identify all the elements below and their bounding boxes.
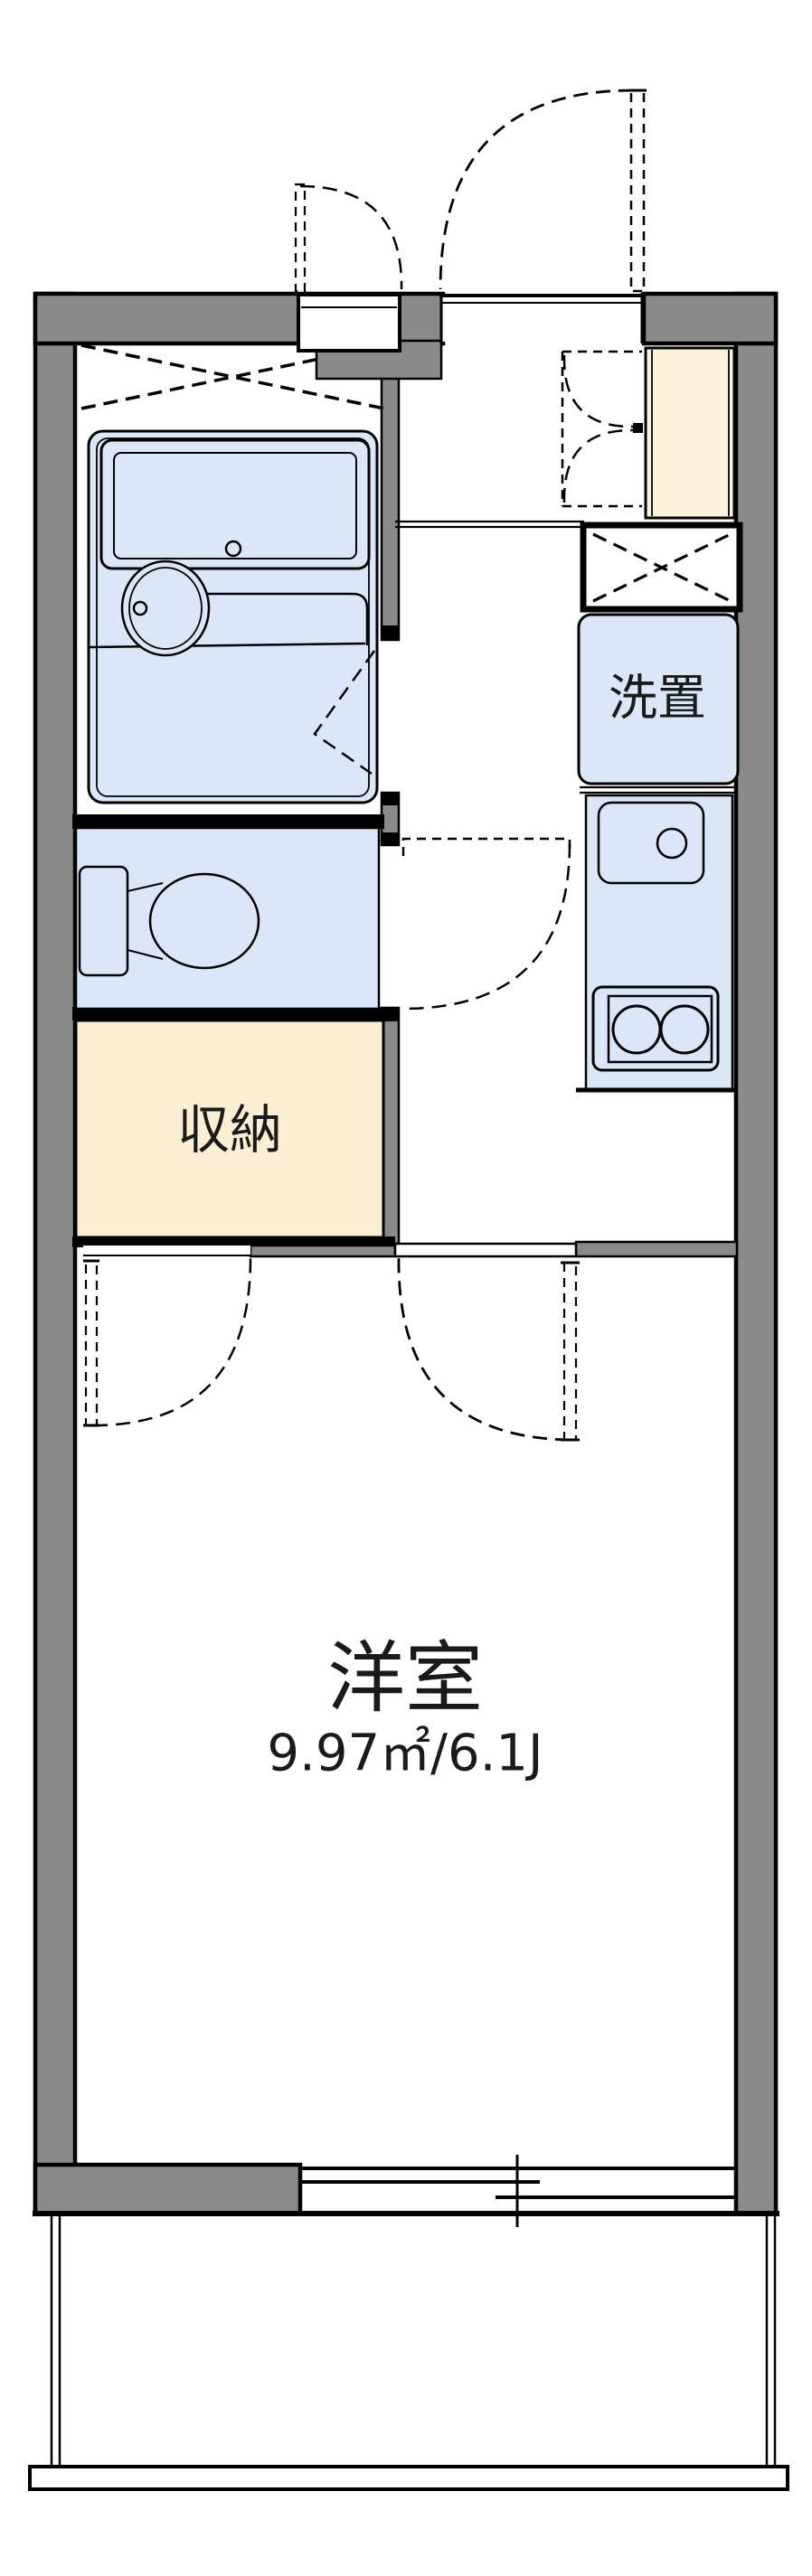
meter-box-door	[296, 184, 305, 291]
storage-label: 収納	[177, 1099, 282, 1161]
kitchen: 洗置	[576, 525, 740, 1090]
kitchen-sink	[599, 803, 703, 883]
shoe-cabinet-doors	[562, 352, 643, 506]
shoe-cabinet	[646, 348, 734, 518]
closet-door	[83, 1246, 250, 1425]
entrance-door	[440, 90, 647, 291]
meter-box-door-swing	[300, 186, 401, 289]
wall-bath-hall	[382, 341, 399, 640]
washing-machine-space: 洗置	[579, 615, 738, 784]
washbasin	[122, 561, 209, 655]
door-handle-mark	[633, 423, 643, 433]
wall-bath-toilet	[72, 814, 384, 829]
bathtub	[101, 440, 369, 569]
main-room-label: 洋室	[327, 1633, 483, 1724]
wall-room-top-left	[250, 1246, 395, 1256]
washer-label: 洗置	[609, 670, 706, 727]
stove-burner	[661, 1006, 708, 1053]
stove-burner	[613, 1006, 660, 1053]
tub-drain	[226, 541, 241, 556]
main-room-area: 9.97㎡/6.1J	[267, 1725, 543, 1783]
wall-left	[35, 294, 75, 2214]
meter-box	[296, 184, 401, 351]
toilet-room	[76, 828, 570, 1009]
main-room: 洋室 9.97㎡/6.1J	[267, 1244, 580, 1783]
gas-stove	[593, 987, 718, 1070]
room-door	[395, 1244, 580, 1440]
toilet-tank	[80, 867, 127, 975]
room-door-threshold	[395, 1244, 576, 1256]
floor-plan: 収納	[0, 0, 812, 2576]
sink-drain	[657, 829, 686, 858]
refrigerator-space	[583, 525, 740, 609]
basin-faucet	[134, 602, 146, 615]
balcony-railing	[30, 2216, 788, 2489]
wall-bottom-left	[35, 2165, 300, 2214]
wall-room-top-right	[576, 1242, 737, 1256]
toilet-bowl	[150, 874, 259, 968]
wall-top-right	[644, 294, 776, 343]
toilet-door	[402, 839, 570, 1009]
storage-closet: 収納	[76, 1020, 383, 1425]
balcony-rail-front	[30, 2467, 788, 2489]
kitchen-counter	[576, 787, 736, 1090]
